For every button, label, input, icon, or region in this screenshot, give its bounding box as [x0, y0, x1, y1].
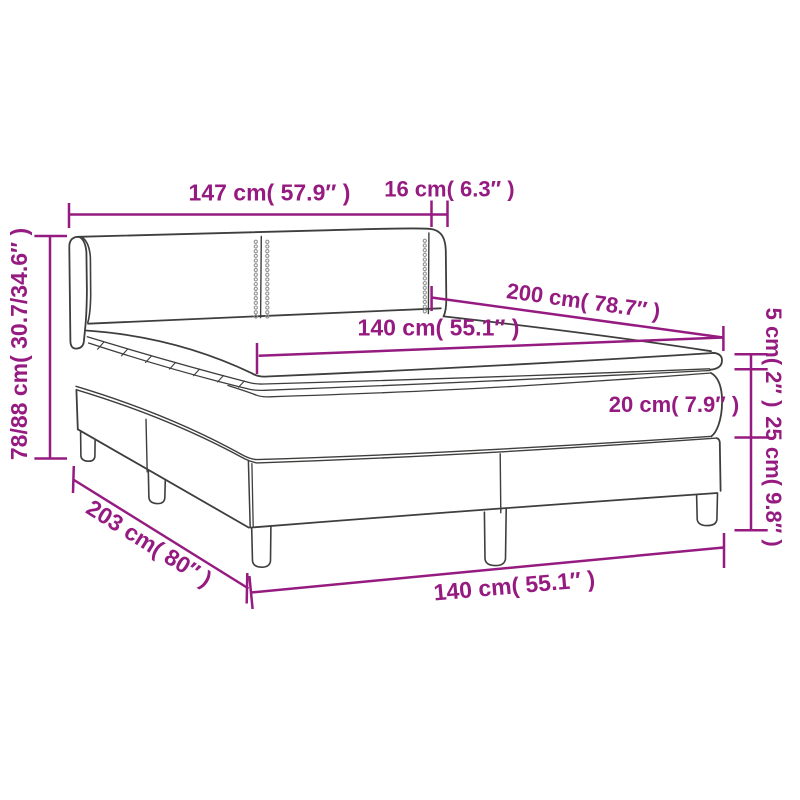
svg-text:5 cm( 2″ ): 5 cm( 2″ ) [761, 308, 786, 408]
svg-text:16 cm( 6.3″ ): 16 cm( 6.3″ ) [384, 176, 514, 201]
svg-text:147 cm( 57.9″ ): 147 cm( 57.9″ ) [189, 179, 351, 205]
svg-text:203 cm( 80″ ): 203 cm( 80″ ) [82, 494, 217, 592]
svg-text:140 cm( 55.1″ ): 140 cm( 55.1″ ) [358, 315, 520, 341]
svg-text:20 cm( 7.9″ ): 20 cm( 7.9″ ) [609, 392, 739, 417]
svg-text:140 cm( 55.1″ ): 140 cm( 55.1″ ) [433, 566, 597, 606]
svg-text:25 cm( 9.8″ ): 25 cm( 9.8″ ) [761, 416, 786, 546]
svg-text:78/88 cm( 30.7/34.6″ ): 78/88 cm( 30.7/34.6″ ) [6, 228, 32, 460]
